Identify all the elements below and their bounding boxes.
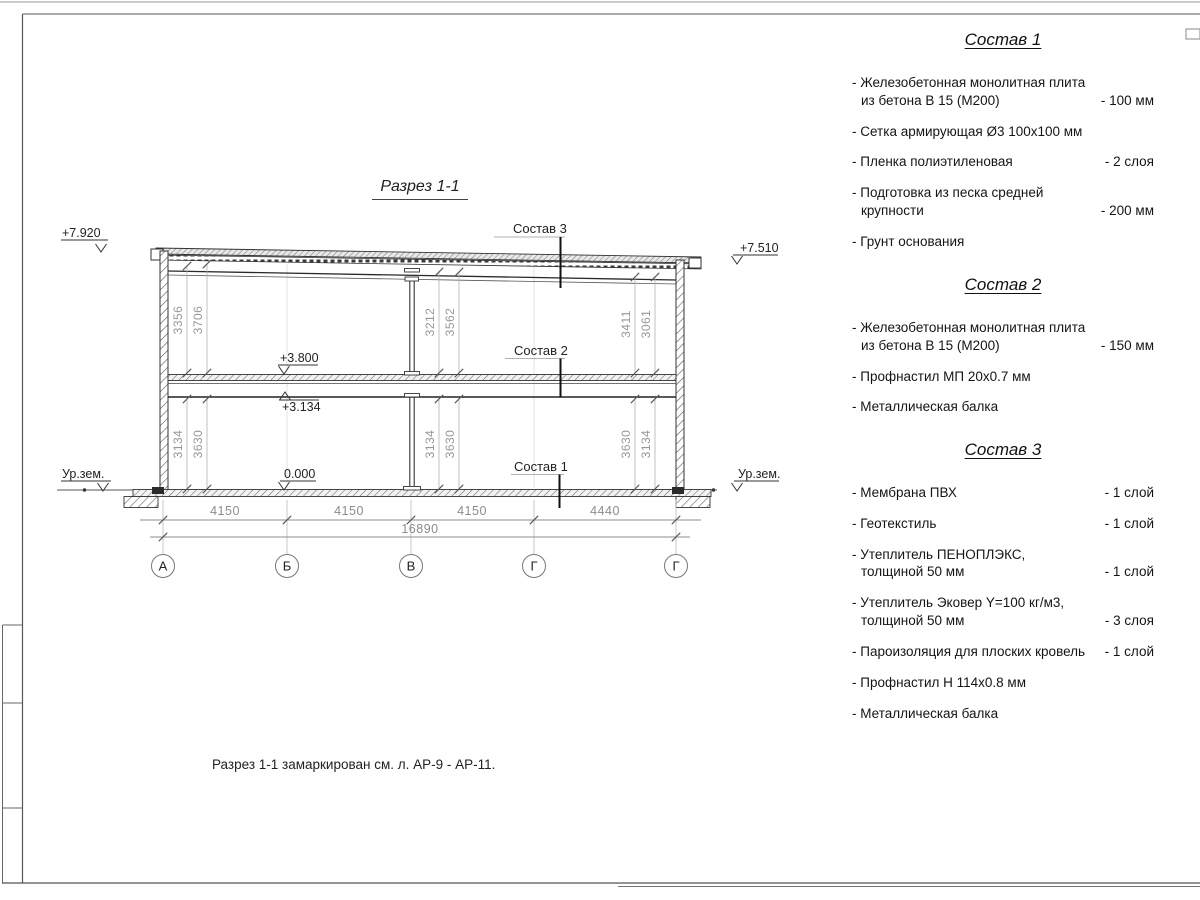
axis-bubble-4: Г [530,559,537,574]
item-name: - Пароизоляция для плоских кровель [852,643,1085,661]
dim-lower-left-2: 3630 [191,430,205,459]
dim-total: 16890 [401,522,438,536]
elevation-arrow-icon [279,482,290,490]
item-name: - Железобетонная монолитная плита из бет… [852,74,1085,110]
list-item: - Железобетонная монолитная плита из бет… [852,319,1154,355]
item-name: - Утеплитель Эковер Y=100 кг/м3, толщино… [852,594,1064,630]
item-name: - Мембрана ПВХ [852,484,957,502]
item-name: - Геотекстиль [852,515,937,533]
ground-level-label-right: Ур.зем. [738,467,780,481]
dim-lower-left-1: 3134 [171,430,185,459]
horizontal-dims: 4150 4150 4150 4440 16890 [140,500,701,554]
dim-span-4: 4440 [590,504,620,518]
list-item: - Профнастил Н 114х0.8 мм [852,674,1154,692]
wall-right [676,260,684,494]
item-name: - Пленка полиэтиленовая [852,153,1013,171]
page-title: Разрез 1-1 [372,178,468,200]
dim-lower-right-2: 3134 [639,430,653,459]
list-item: - Металлическая балка [852,705,1154,723]
footing-right [676,497,710,508]
footnote: Разрез 1-1 замаркирован см. л. АР-9 - АР… [212,757,495,772]
list-item: - Сетка армирующая Ø3 100x100 мм [852,123,1154,141]
floor-slab [168,375,676,398]
item-value: - 1 слой [1097,515,1154,533]
elevation-floor-top: +3.800 [280,351,319,365]
item-value: - 1 слой [1097,563,1154,581]
elevation-arrow-icon [732,256,743,264]
list-item: - Пароизоляция для плоских кровель - 1 с… [852,643,1154,661]
item-name: - Железобетонная монолитная плита из бет… [852,319,1085,355]
item-name: - Металлическая балка [852,398,998,416]
axis-bubble-3: В [407,559,416,574]
list-item: - Мембрана ПВХ - 1 слой [852,484,1154,502]
list-item: - Профнастил МП 20х0.7 мм [852,368,1154,386]
item-name: - Сетка армирующая Ø3 100x100 мм [852,123,1082,141]
item-name: - Профнастил Н 114х0.8 мм [852,674,1026,692]
dim-span-1: 4150 [210,504,240,518]
list-item: - Подготовка из песка средней крупности … [852,184,1154,220]
item-value: - 1 слой [1097,484,1154,502]
list-item: - Металлическая балка [852,398,1154,416]
composition-title: Состав 3 [852,440,1154,460]
dim-upper-right-1: 3411 [619,310,633,338]
list-item: - Пленка полиэтиленовая - 2 слоя [852,153,1154,171]
elevation-roof-left: +7.920 [62,226,101,240]
composition-title: Состав 1 [852,30,1154,50]
composition-3-list: Состав 3 - Мембрана ПВХ - 1 слой - Геоте… [852,440,1154,735]
dim-upper-left-1: 3356 [171,306,185,335]
elevation-arrow-icon [732,483,743,491]
stamp-box [1186,29,1200,39]
composition-title: Состав 2 [852,275,1154,295]
dim-upper-mid-2: 3562 [443,308,457,337]
item-value: - 3 слоя [1097,612,1154,630]
elevation-ground: 0.000 [284,467,315,481]
dim-lower-mid-2: 3630 [443,430,457,459]
dim-upper-left-2: 3706 [191,306,205,335]
list-item: - Грунт основания [852,233,1154,251]
label-sostav2: Состав 2 [514,343,568,358]
list-item: - Утеплитель Эковер Y=100 кг/м3, толщино… [852,594,1154,630]
roof [151,248,701,284]
list-item: - Геотекстиль - 1 слой [852,515,1154,533]
elevation-roof-right: +7.510 [740,241,779,255]
axis-bubble-5: Г [672,559,679,574]
item-value: - 200 мм [1093,202,1154,220]
axis-bubble-2: Б [283,559,292,574]
elevation-floor-bottom: +3.134 [282,400,321,414]
item-name: - Утеплитель ПЕНОПЛЭКС, толщиной 50 мм [852,546,1025,582]
dim-lower-right-1: 3630 [619,430,633,459]
item-name: - Металлическая балка [852,705,998,723]
composition-2-list: Состав 2 - Железобетонная монолитная пли… [852,275,1154,429]
item-name: - Профнастил МП 20х0.7 мм [852,368,1031,386]
item-value: - 2 слоя [1097,153,1154,171]
elevation-arrow-icon [96,244,107,252]
dim-lower-mid-1: 3134 [423,430,437,459]
label-sostav3: Состав 3 [513,221,567,236]
dim-span-2: 4150 [334,504,364,518]
footing-left [124,497,158,508]
dim-upper-mid-1: 3212 [423,308,437,337]
composition-1-list: Состав 1 - Железобетонная монолитная пли… [852,30,1154,264]
list-item: - Железобетонная монолитная плита из бет… [852,74,1154,110]
dim-span-3: 4150 [457,504,487,518]
item-value: - 100 мм [1093,92,1154,110]
elevation-arrow-icon [279,366,290,374]
elevation-arrow-icon [280,392,291,400]
wall-left [160,251,168,494]
sheet: { "drawing": { "title": "Разрез 1-1", "e… [0,0,1200,900]
item-name: - Грунт основания [852,233,964,251]
axis-bubble-1: А [159,559,168,574]
item-value: - 1 слой [1097,643,1154,661]
axis-bubbles: А Б В Г Г [152,555,688,578]
label-sostav1: Состав 1 [514,459,568,474]
item-value: - 150 мм [1093,337,1154,355]
dim-upper-right-2: 3061 [639,310,653,339]
ground-level-label-left: Ур.зем. [62,467,104,481]
item-name: - Подготовка из песка средней крупности [852,184,1043,220]
list-item: - Утеплитель ПЕНОПЛЭКС, толщиной 50 мм -… [852,546,1154,582]
